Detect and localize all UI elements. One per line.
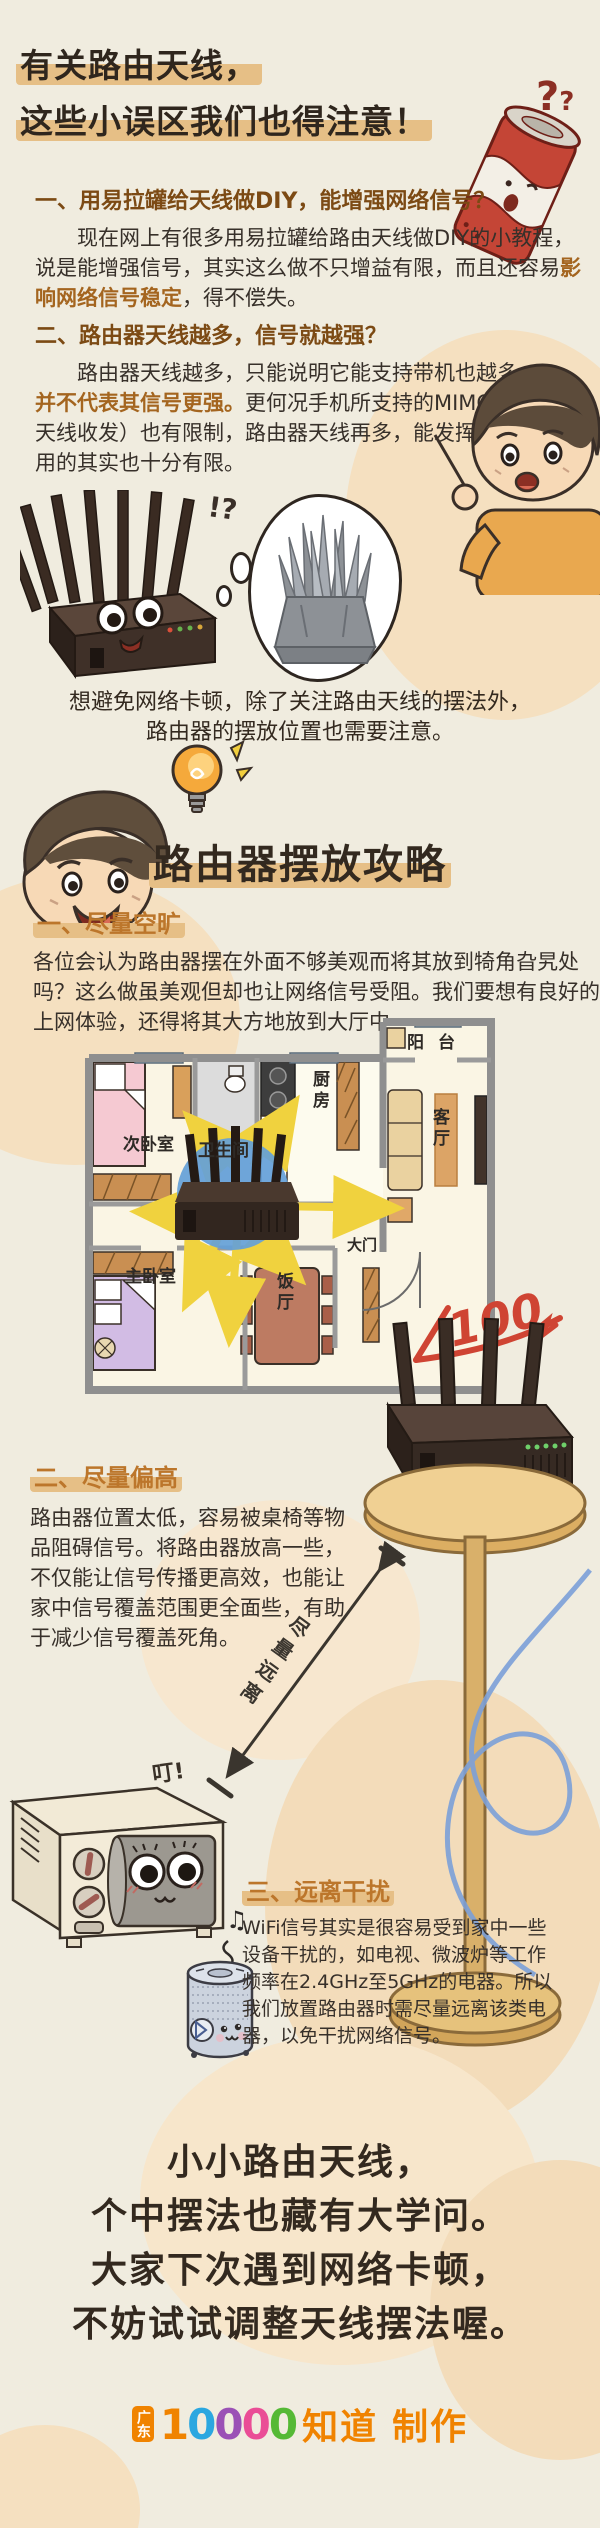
room-label-second-bedroom: 次卧室 [123,1130,174,1155]
room-label-dining-room: 饭厅 [271,1272,296,1314]
room-label-bathroom: 卫生间 [198,1136,249,1161]
thought-bubble-dot [216,585,232,607]
tip-1-heading: 一、尽量空旷 [33,904,600,939]
page-title: 有关路由天线， 这些小误区我们也得注意！ [16,38,432,150]
logo-digit: 1 [160,2400,187,2449]
title-line-1: 有关路由天线， [16,46,262,85]
ending-line-2: 个中摆法也藏有大学问。 [0,2190,600,2244]
logo-number: 10000 [160,2400,296,2449]
thought-bubble [248,494,402,682]
room-label-kitchen: 厨房 [307,1070,332,1112]
ending-line-4: 不妨试试调整天线摆法喔。 [0,2298,600,2352]
boy-pointing-illustration [415,350,600,595]
tip-3: 三、远离干扰 WiFi信号其实是很容易受到家中一些设备干扰的，如电视、微波炉等工… [242,1872,554,2050]
infographic-page: 有关路由天线， 这些小误区我们也得注意！ ?? 一、用易拉罐给天线做DIY，能增… [0,0,600,2528]
ending-text: 小小路由天线， 个中摆法也藏有大学问。 大家下次遇到网络卡顿， 不妨试试调整天线… [0,2136,600,2352]
logo-digit: 0 [187,2400,214,2449]
tip-2-heading-text: 二、尽量偏高 [30,1464,182,1492]
misconception-1: 一、用易拉罐给天线做DIY，能增强网络信号？ 现在网上有很多用易拉罐给路由天线做… [35,183,590,313]
question-mark-small: ? [559,87,574,117]
guide-title-text: 路由器摆放攻略 [149,842,451,888]
question-mark-big: ? [536,74,559,120]
logo-brand: 知道 [302,2398,378,2450]
room-label-living-room: 客厅 [427,1108,452,1150]
exclaim-question-label: !? [206,490,239,527]
room-label-main-door: 大门 [347,1234,377,1255]
tip-3-heading-text: 三、远离干扰 [242,1878,394,1906]
ending-line-3: 大家下次遇到网络卡顿， [0,2244,600,2298]
transition-line-2: 路由器的摆放位置也需要注意。 [0,718,600,748]
room-label-master-bedroom: 主卧室 [125,1262,176,1287]
title-line-2: 这些小误区我们也得注意！ [16,102,432,141]
logo-digit: 0 [242,2400,269,2449]
iron-throne-illustration [251,497,399,679]
transition-line-1: 想避免网络卡顿，除了关注路由天线的摆法外， [0,688,600,718]
transition-text: 想避免网络卡顿，除了关注路由天线的摆法外， 路由器的摆放位置也需要注意。 [0,688,600,748]
logo-suffix: 制作 [392,2398,468,2450]
misconception-1-heading: 一、用易拉罐给天线做DIY，能增强网络信号？ [35,183,590,215]
router-many-antennas-illustration [20,490,225,680]
ding-sound-label: 叮! [150,1753,186,1789]
logo: 广东 10000 知道 制作 [0,2398,600,2450]
room-label-balcony: 阳台 [407,1028,469,1053]
emphasis-text: 并不代表其信号更强。 [35,391,245,415]
tip-2-heading: 二、尽量偏高 [30,1458,360,1493]
logo-region-badge: 广东 [132,2406,154,2442]
tip-1-heading-text: 一、尽量空旷 [33,910,185,938]
logo-digit: 0 [269,2400,296,2449]
question-marks-icon: ?? [536,80,574,119]
distance-arrow [185,1540,415,1810]
ending-line-1: 小小路由天线， [0,2136,600,2190]
logo-digit: 0 [214,2400,241,2449]
body-text: ，得不偿失。 [182,286,308,310]
tip-3-heading: 三、远离干扰 [242,1872,554,1907]
guide-title: 路由器摆放攻略 [0,832,600,890]
misconception-2-heading: 二、路由器天线越多，信号就越强？ [35,318,543,350]
lightbulb-icon [165,740,255,832]
body-text: 现在网上有很多用易拉罐给路由天线做DIY的小教程，说是能增强信号，其实这么做不只… [35,226,574,280]
tip-3-body: WiFi信号其实是很容易受到家中一些设备干扰的，如电视、微波炉等工作频率在2.4… [242,1915,554,2050]
misconception-1-body: 现在网上有很多用易拉罐给路由天线做DIY的小教程，说是能增强信号，其实这么做不只… [35,223,590,313]
